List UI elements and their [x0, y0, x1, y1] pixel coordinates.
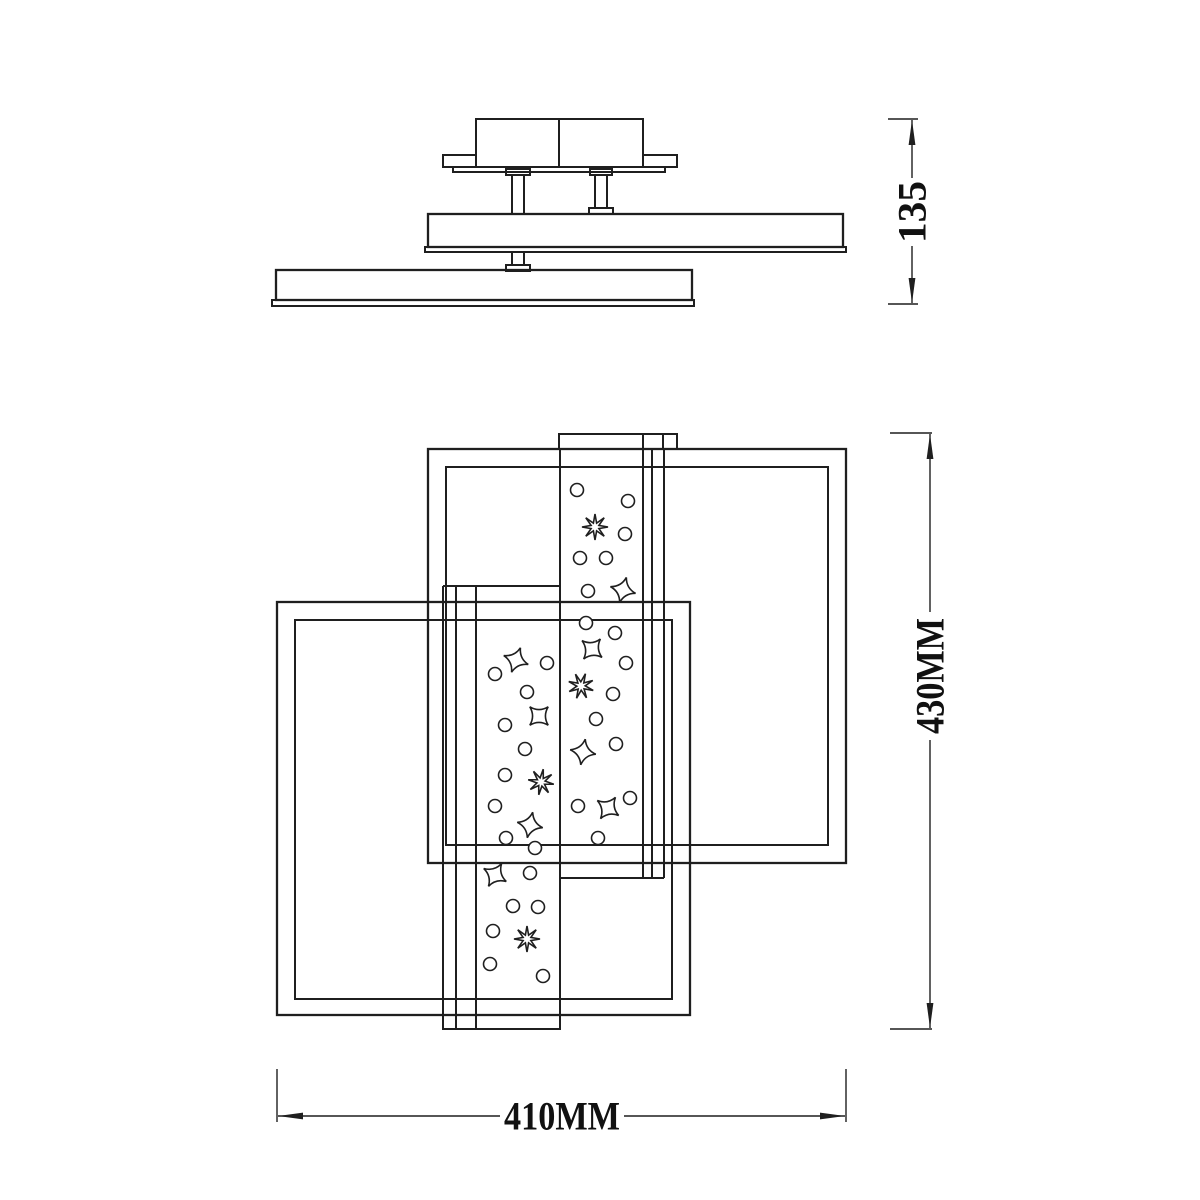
burst-star-icon — [526, 767, 556, 797]
upper-light-panel-lip — [425, 247, 846, 252]
ceiling-lamp-technical-drawing: 135 430MM 410MM — [0, 0, 1200, 1200]
bubble-dot-icon — [484, 958, 497, 971]
bubble-dot-icon — [607, 688, 620, 701]
stem2-shaft — [595, 175, 607, 208]
sparkle-star-icon — [515, 810, 546, 841]
bubble-dot-icon — [610, 738, 623, 751]
sparkle-star-icon — [499, 643, 532, 676]
bubble-dot-icon — [592, 832, 605, 845]
top-mounting-tab — [559, 434, 677, 449]
bubble-dot-icon — [574, 552, 587, 565]
stem3-shaft — [512, 252, 524, 265]
burst-star-icon — [564, 669, 597, 702]
arrow-left-icon — [278, 1113, 303, 1120]
bubble-dot-icon — [572, 800, 585, 813]
bubble-dot-icon — [521, 686, 534, 699]
arrow-up-icon — [927, 434, 934, 459]
burst-star-icon — [514, 926, 540, 952]
arrow-right-icon — [820, 1113, 845, 1120]
bubble-dot-icon — [524, 867, 537, 880]
bubble-dot-icon — [580, 617, 593, 630]
dimension-label-overall-length: 430MM — [908, 618, 953, 734]
mounting-plate-left-wing — [443, 155, 476, 167]
bubble-dot-icon — [600, 552, 613, 565]
plan-view — [277, 434, 846, 1029]
sparkle-star-icon — [521, 698, 558, 735]
arrow-up-icon — [909, 120, 916, 145]
bottom-tab-outline — [443, 1015, 560, 1029]
arrow-down-icon — [927, 1003, 934, 1028]
top-tab-dividers — [643, 434, 663, 449]
bubble-dot-icon — [582, 585, 595, 598]
bubble-dot-icon — [500, 832, 513, 845]
arrow-down-icon — [909, 278, 916, 303]
dimension-overall-length: 430MM — [890, 433, 953, 1029]
dimension-overall-width: 410MM — [277, 1069, 846, 1139]
bubble-dot-icon — [620, 657, 633, 670]
side-view — [272, 119, 846, 306]
bubble-dot-icon — [619, 528, 632, 541]
top-tab-outline — [559, 434, 677, 449]
sparkle-star-icon — [574, 631, 611, 668]
dimension-label-overall-width: 410MM — [504, 1094, 620, 1139]
mounting-plate-lip — [453, 167, 665, 172]
bubble-dot-icon — [571, 484, 584, 497]
bubble-dot-icon — [537, 970, 550, 983]
led-strip-decorations — [477, 484, 639, 983]
bubble-dot-icon — [622, 495, 635, 508]
burst-star-icon — [582, 514, 608, 540]
bubble-dot-icon — [499, 769, 512, 782]
left-strip-rails — [443, 586, 560, 1015]
bubble-dot-icon — [541, 657, 554, 670]
sparkle-star-icon — [568, 737, 598, 767]
upper-right-frame-inner — [446, 467, 828, 845]
upper-light-panel — [428, 214, 843, 247]
bottom-mounting-tab — [443, 1015, 560, 1029]
bubble-dot-icon — [489, 800, 502, 813]
bottom-tab-dividers — [456, 1015, 476, 1029]
bubble-dot-icon — [489, 668, 502, 681]
bubble-dot-icon — [519, 743, 532, 756]
bubble-dot-icon — [532, 901, 545, 914]
lower-light-panel — [276, 270, 692, 300]
sparkle-star-icon — [590, 790, 626, 826]
bubble-dot-icon — [499, 719, 512, 732]
mounting-plate-right-wing — [643, 155, 677, 167]
bubble-dot-icon — [609, 627, 622, 640]
stem1-shaft — [512, 175, 524, 214]
bubble-dot-icon — [487, 925, 500, 938]
dimension-label-fixture-height: 135 — [890, 181, 935, 243]
dimension-fixture-height: 135 — [888, 119, 935, 304]
bubble-dot-icon — [590, 713, 603, 726]
bubble-dot-icon — [624, 792, 637, 805]
bubble-dot-icon — [507, 900, 520, 913]
lower-light-panel-lip — [272, 300, 694, 306]
left-led-strip — [443, 586, 560, 1015]
bubble-dot-icon — [529, 842, 542, 855]
